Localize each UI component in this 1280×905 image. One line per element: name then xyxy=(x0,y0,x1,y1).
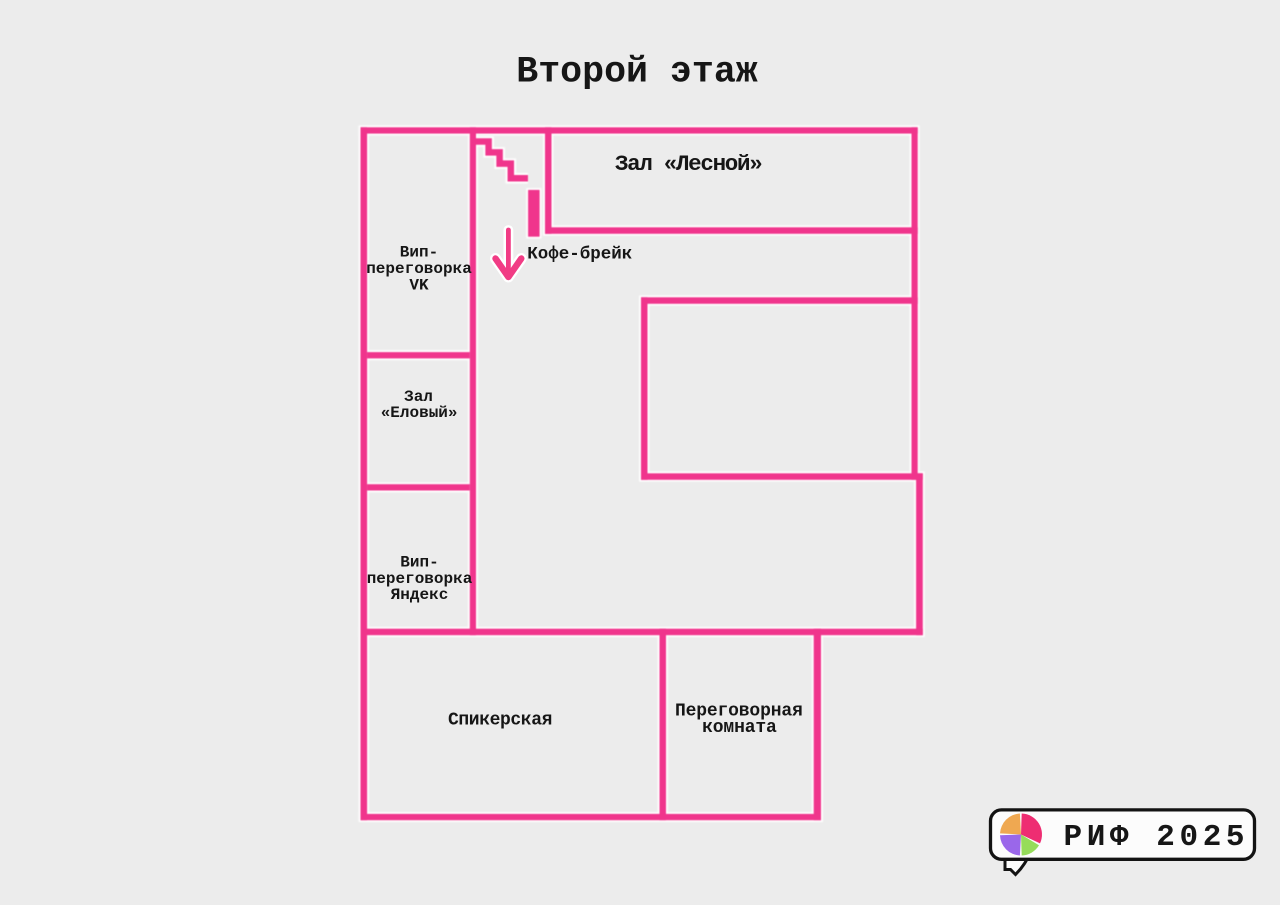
svg-text:Второй этаж: Второй этаж xyxy=(516,51,758,92)
svg-text:Вип-: Вип- xyxy=(400,554,438,572)
svg-text:переговорка: переговорка xyxy=(366,260,472,278)
svg-text:РИФ 2025: РИФ 2025 xyxy=(1064,820,1250,855)
svg-text:«Еловый»: «Еловый» xyxy=(381,404,458,422)
svg-text:комната: комната xyxy=(702,718,777,738)
svg-text:Спикерская: Спикерская xyxy=(448,711,552,731)
svg-text:Яндекс: Яндекс xyxy=(391,586,449,604)
svg-text:Вип-: Вип- xyxy=(400,243,438,261)
svg-text:Кофе-брейк: Кофе-брейк xyxy=(527,243,632,264)
svg-text:VK: VK xyxy=(409,277,429,295)
svg-text:Зал «Лесной»: Зал «Лесной» xyxy=(615,151,762,177)
